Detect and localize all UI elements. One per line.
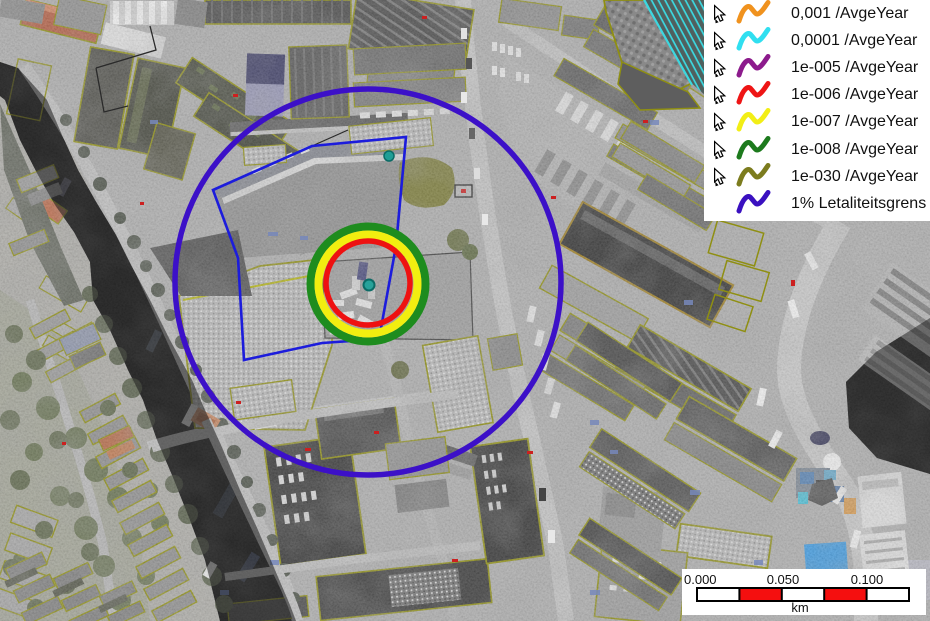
svg-text:1e-008 /AvgeYear: 1e-008 /AvgeYear bbox=[791, 141, 919, 158]
svg-text:1e-030 /AvgeYear: 1e-030 /AvgeYear bbox=[791, 168, 919, 185]
svg-text:1e-007 /AvgeYear: 1e-007 /AvgeYear bbox=[791, 113, 919, 130]
svg-text:0.050: 0.050 bbox=[767, 572, 800, 587]
svg-text:km: km bbox=[791, 600, 808, 615]
svg-text:0.000: 0.000 bbox=[684, 572, 717, 587]
svg-text:0,0001 /AvgeYear: 0,0001 /AvgeYear bbox=[791, 32, 918, 49]
svg-text:0.100: 0.100 bbox=[851, 572, 884, 587]
svg-text:0,001 /AvgeYear: 0,001 /AvgeYear bbox=[791, 5, 909, 22]
svg-text:1e-005 /AvgeYear: 1e-005 /AvgeYear bbox=[791, 59, 919, 76]
svg-text:1e-006 /AvgeYear: 1e-006 /AvgeYear bbox=[791, 86, 919, 103]
svg-text:1% Letaliteitsgrens: 1% Letaliteitsgrens bbox=[791, 195, 926, 212]
